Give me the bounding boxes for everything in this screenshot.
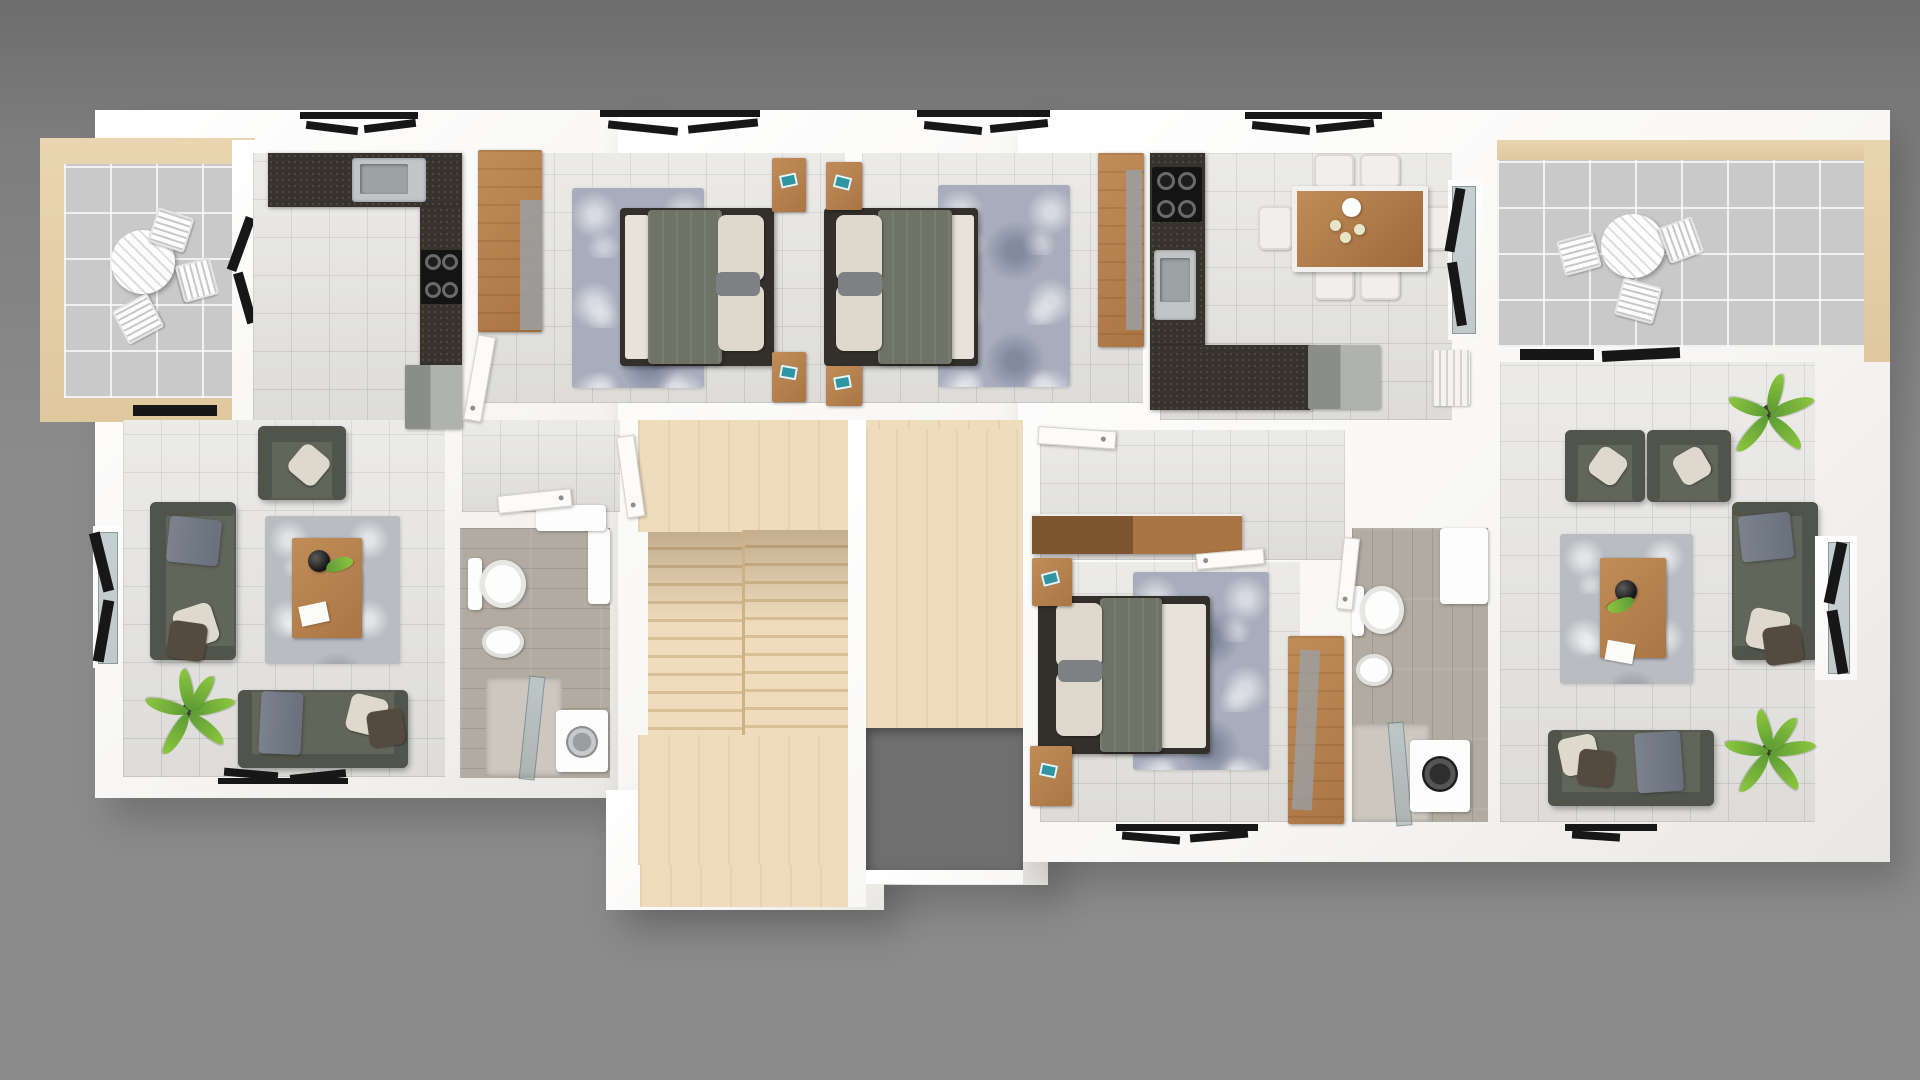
left-kitchen-sink-basin bbox=[360, 164, 408, 194]
bedroom2-accent-pillow bbox=[838, 272, 882, 296]
left-sofa-blanket bbox=[166, 515, 223, 566]
left-sofa-pillow-dark bbox=[166, 620, 209, 663]
left-bathroom-sink bbox=[482, 626, 524, 658]
right-kitchen-window-bar bbox=[1245, 112, 1382, 119]
left-cooktop-burner-2 bbox=[442, 254, 458, 270]
right-bathroom-sink bbox=[1356, 654, 1392, 686]
left-kitchen-window-bar bbox=[300, 112, 418, 119]
left-armchair-arm-r bbox=[332, 426, 346, 500]
right-sofa-horizontal-blanket bbox=[1634, 730, 1684, 793]
bedroom2-wardrobe-gray-panel bbox=[1126, 170, 1142, 330]
bedroom2-window-bar bbox=[917, 110, 1050, 117]
tea-cup-1 bbox=[1330, 220, 1341, 231]
dining-chair-left bbox=[1258, 206, 1292, 250]
right-kitchen-radiator bbox=[1432, 350, 1470, 406]
left-tv-cabinet bbox=[405, 365, 462, 429]
right-washer-drum bbox=[1422, 756, 1458, 792]
right-armchair-1-arm-r bbox=[1632, 430, 1645, 502]
left-sofa-horizontal-blanket bbox=[258, 691, 303, 755]
left-washer-drum bbox=[566, 726, 598, 758]
left-cooktop-burner-4 bbox=[442, 282, 458, 298]
left-sofa-vertical-back bbox=[150, 502, 166, 660]
leaf bbox=[159, 711, 193, 757]
bedroom3-pillow-top bbox=[1056, 603, 1102, 667]
left-sofa-horizontal-arm-l bbox=[238, 690, 252, 768]
left-armchair-arm-l bbox=[258, 426, 272, 500]
right-armchair-1-arm-l bbox=[1565, 430, 1578, 502]
leaf bbox=[1765, 412, 1805, 452]
right-cooktop-burner-3 bbox=[1157, 200, 1175, 218]
hall-console bbox=[1032, 514, 1242, 554]
right-cooktop-burner-1 bbox=[1157, 172, 1175, 190]
leaf bbox=[1765, 750, 1803, 792]
bedroom1-window-bar bbox=[600, 110, 760, 117]
bedroom2-mattress-edge bbox=[950, 215, 974, 359]
right-kitchen-sink-basin bbox=[1160, 258, 1190, 302]
bedroom1-accent-pillow bbox=[716, 272, 760, 296]
stair-void bbox=[866, 728, 1023, 870]
door-handle bbox=[470, 405, 476, 411]
bedroom1-wardrobe-gray-panel bbox=[520, 200, 542, 330]
left-toilet-bowl bbox=[480, 560, 526, 608]
stair-extension-floor bbox=[640, 865, 848, 907]
dining-chair-top-1 bbox=[1314, 154, 1354, 188]
left-living-plant bbox=[148, 666, 232, 752]
door-handle bbox=[630, 502, 636, 508]
right-living-plant-bottom bbox=[1726, 708, 1814, 790]
stair-void-bottom-wall bbox=[866, 870, 1023, 884]
left-sofa-horizontal-back bbox=[238, 754, 408, 768]
right-kitchen-counter-bottom bbox=[1150, 345, 1310, 410]
right-living-plant-top bbox=[1726, 374, 1814, 448]
door-handle bbox=[1342, 596, 1347, 601]
bedroom3-accent-pillow bbox=[1058, 660, 1102, 682]
right-sofa-horizontal-arm-r bbox=[1700, 730, 1714, 806]
right-sofa-horizontal-pillow-dark bbox=[1576, 748, 1616, 788]
right-balcony-frame-right bbox=[1864, 140, 1890, 362]
right-balcony-table bbox=[1601, 214, 1665, 278]
right-toilet-bowl bbox=[1360, 586, 1404, 634]
leaf bbox=[186, 710, 228, 748]
door-handle bbox=[558, 495, 563, 500]
stair-lower-landing bbox=[638, 735, 848, 865]
stair-divider-wall bbox=[848, 420, 866, 907]
tea-cup-3 bbox=[1340, 232, 1351, 243]
door-handle bbox=[1203, 558, 1208, 563]
right-tv-cabinet bbox=[1308, 345, 1380, 409]
left-bathroom-wall-cabinet bbox=[588, 528, 610, 604]
bedroom1-mattress-edge bbox=[625, 215, 649, 359]
floor-plan-canvas bbox=[0, 0, 1920, 1080]
right-armchair-2-arm-l bbox=[1647, 430, 1660, 502]
right-cooktop-burner-4 bbox=[1178, 200, 1196, 218]
entry-platform bbox=[866, 430, 1023, 728]
right-sofa-blanket bbox=[1738, 511, 1795, 562]
left-sofa-vertical-arm-t bbox=[150, 502, 236, 516]
tea-cup-2 bbox=[1354, 224, 1365, 235]
bedroom1-nightstand-bottom-deco bbox=[779, 365, 798, 381]
door-handle bbox=[1101, 436, 1106, 441]
right-bathroom-wall-cabinet bbox=[1440, 528, 1488, 604]
right-cooktop-burner-2 bbox=[1178, 172, 1196, 190]
bedroom3-mattress bbox=[1160, 604, 1206, 748]
stair-flight-seam bbox=[742, 530, 745, 738]
bedroom3-duvet bbox=[1100, 598, 1162, 752]
right-sofa-pillow-dark bbox=[1762, 624, 1805, 667]
dining-chair-top-2 bbox=[1360, 154, 1400, 188]
left-cooktop-burner-3 bbox=[425, 282, 441, 298]
right-balcony-frame-top bbox=[1497, 140, 1890, 160]
bedroom1-duvet bbox=[648, 210, 722, 364]
tea-pot bbox=[1342, 198, 1361, 217]
bedroom2-duvet bbox=[878, 210, 952, 364]
leaf bbox=[1736, 751, 1773, 796]
left-balcony-bottom-door-frame bbox=[133, 405, 217, 416]
right-sofa-horizontal-back bbox=[1548, 792, 1714, 806]
left-sofa-horizontal-pillow-dark bbox=[366, 708, 407, 749]
stair-flight-left bbox=[648, 532, 742, 735]
right-balcony-door-frame-1 bbox=[1520, 349, 1594, 360]
stair-flight-right bbox=[745, 530, 848, 738]
left-cooktop-burner-1 bbox=[425, 254, 441, 270]
